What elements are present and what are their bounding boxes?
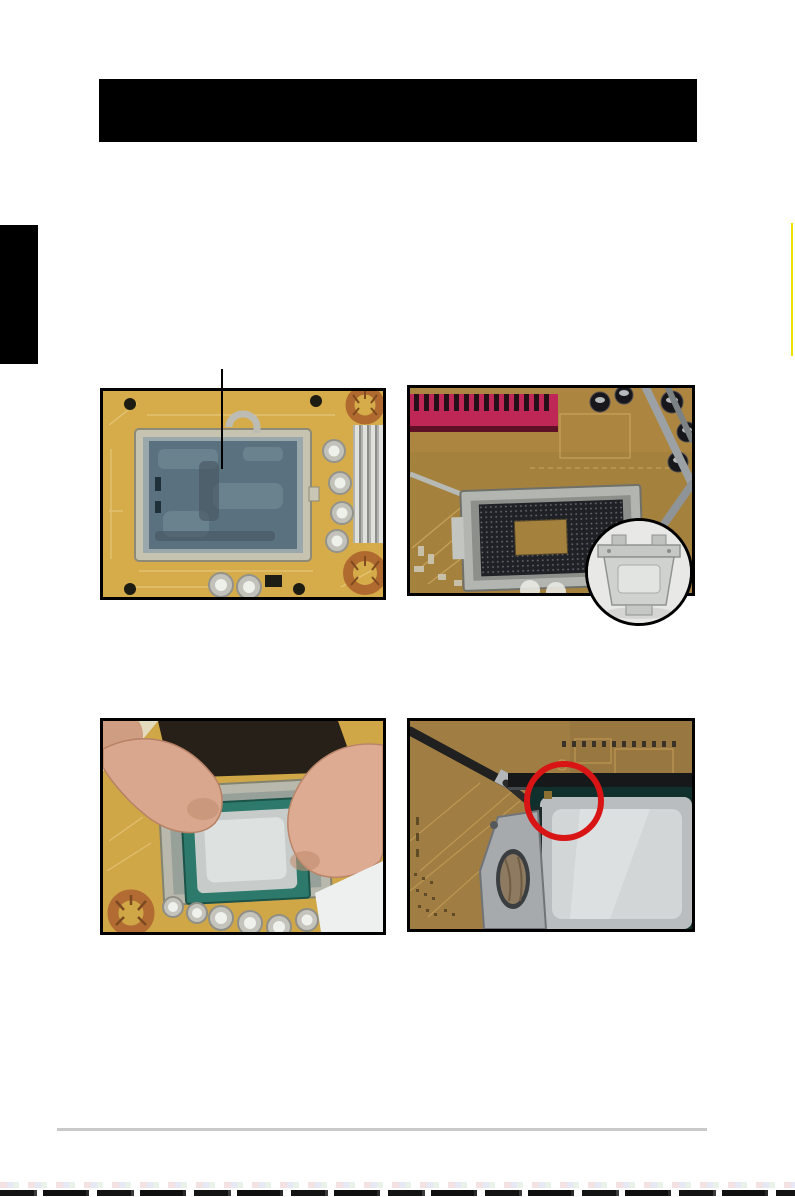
cap-callout-line [221,369,223,469]
page-edge-tab [0,225,38,364]
figure-cpu-install-hand [100,718,386,935]
scan-noise-strip [0,1182,795,1188]
ic-chip [265,575,282,587]
figure-socket-with-cap [100,388,386,600]
chapter-header-banner [99,79,697,142]
cpu-install-illustration [103,721,383,932]
cpu-socket-assembly [135,414,319,561]
socket-cap-illustration [103,391,383,597]
footer-rule [57,1128,707,1131]
cutoff-text-strip [0,1190,795,1196]
pnp-cap-inset [585,518,693,626]
pnp-cap-drawing [588,521,690,623]
cpu [528,787,692,929]
manual-page [0,0,795,1197]
page-edge-highlight [791,223,793,356]
vrm-heatsink [410,394,558,432]
cpu-seated-illustration [410,721,692,929]
alignment-key [544,791,552,799]
figure-cpu-seated [407,718,695,932]
chipset-heatsink [353,425,383,543]
